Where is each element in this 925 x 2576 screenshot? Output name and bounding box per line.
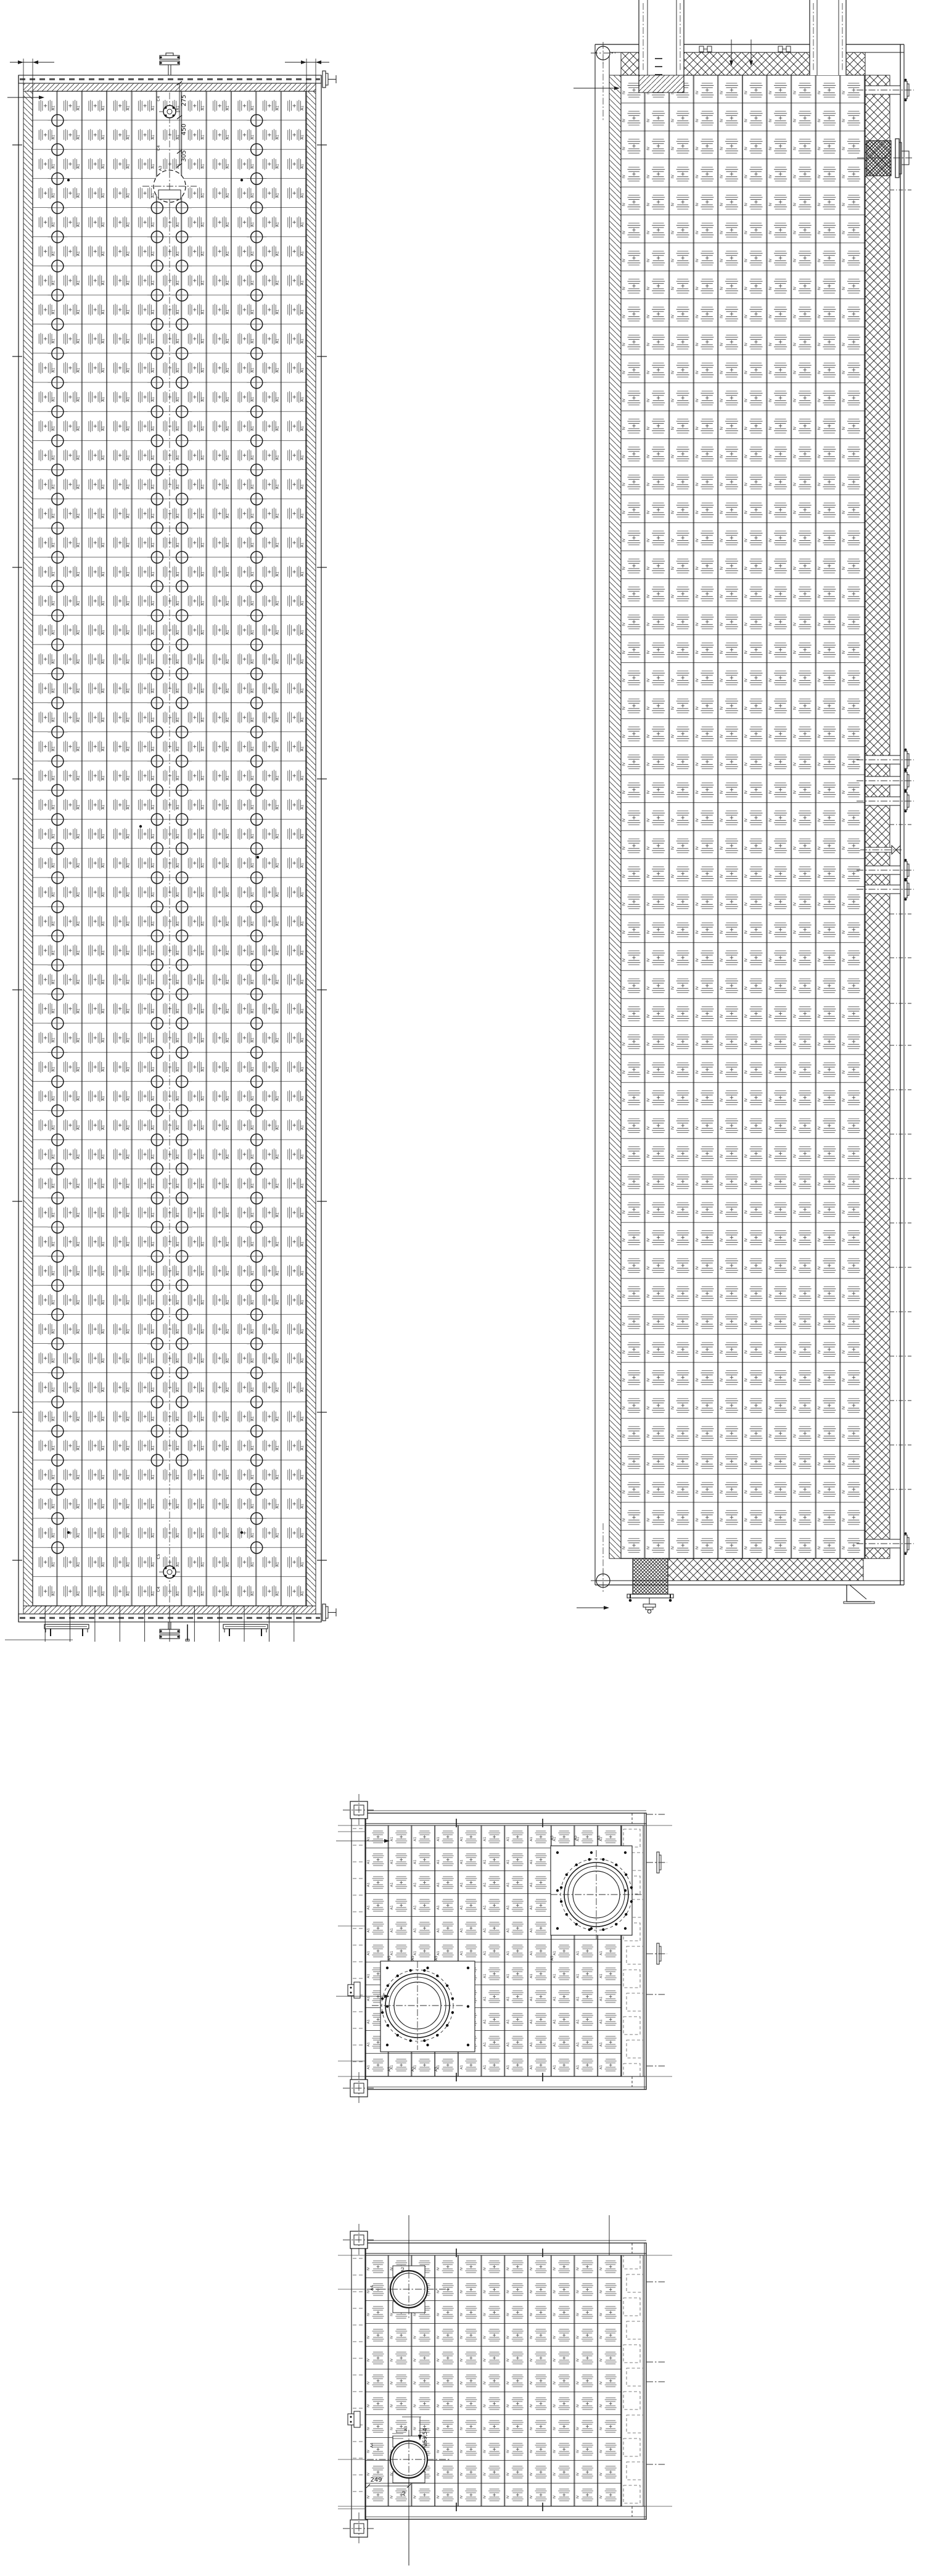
dimension-text: 450 — [181, 123, 187, 135]
rail-clip — [699, 46, 712, 52]
type-tag: A4 — [369, 2286, 374, 2291]
plan-view-bottom: 249253,54A2A3A4A4A2 — [338, 2215, 672, 2566]
side-connector — [348, 1982, 360, 1998]
type-tag: A5 — [434, 1956, 438, 1961]
edge-flange — [646, 1852, 667, 1873]
type-tag: A3 — [158, 166, 163, 171]
type-tag: A5 — [411, 1956, 415, 1961]
type-tag: A5 — [411, 2067, 415, 2072]
nozzle-opening — [372, 1961, 475, 2052]
bottom-insulation — [668, 1558, 863, 1581]
type-tag: A5 — [434, 2067, 438, 2072]
left-lining-band — [609, 75, 621, 1558]
dimension-text: 305 — [181, 150, 187, 162]
side-pipe-flange — [323, 1604, 336, 1621]
type-tag: C4 — [156, 96, 161, 102]
insulation-band — [865, 75, 890, 1558]
top-nozzle-fitting — [160, 53, 179, 75]
dimension-text: 253,54 — [422, 2428, 429, 2446]
type-tag: A4 — [369, 2443, 374, 2448]
corner-pipe-section — [591, 42, 615, 64]
top-lining-band — [23, 83, 316, 91]
duct-pipe — [810, 0, 846, 75]
type-tag: A5 — [573, 1835, 578, 1840]
side-pipe-flange — [323, 71, 336, 88]
left-lining-band — [23, 91, 33, 1606]
right-lining-band — [306, 91, 316, 1606]
type-tag: A2 — [401, 2491, 406, 2496]
rail-clip — [778, 46, 791, 52]
anchor-brick-grid — [621, 75, 865, 1558]
corner-flange — [343, 2224, 375, 2256]
cad-drawing: A1 IV A1 — [0, 0, 925, 2576]
type-tag: A5 — [597, 1835, 601, 1840]
side-connector — [348, 2411, 360, 2427]
duct-pipe — [639, 0, 684, 93]
corner-flange — [343, 2072, 375, 2104]
type-tag: A5 — [550, 1956, 554, 1961]
bottom-nozzle-fitting — [160, 1622, 189, 1641]
brick-course-column — [622, 2255, 643, 2506]
corner-flange — [343, 2512, 375, 2545]
nozzle-opening — [551, 1846, 642, 1939]
corner-flange — [343, 1794, 375, 1826]
insulated-bottom-nozzle — [633, 1558, 668, 1594]
dimension-text: 249 — [370, 2477, 382, 2483]
support-bracket — [44, 1624, 89, 1636]
front-elevation-view: 275450305C4C4A3C5C4 — [5, 53, 336, 1642]
type-tag: A2 — [400, 2267, 405, 2273]
type-tag: A5 — [387, 1956, 392, 1961]
bottom-zone — [595, 1558, 904, 1613]
type-tag: C4 — [156, 146, 161, 151]
type-tag: C5 — [156, 1554, 161, 1560]
support-bracket — [223, 1624, 268, 1636]
type-tag: A3 — [403, 2426, 408, 2432]
plan-view-top: A5A5A5A5A5A5A5A5A5A5 — [336, 1794, 672, 2104]
type-tag: C4 — [156, 1587, 161, 1592]
drawing-sheet: A1 IV A1 — [0, 0, 925, 2576]
corner-bracket — [844, 1585, 874, 1603]
edge-flange — [646, 1943, 667, 1964]
side-section-view — [573, 0, 914, 1613]
type-tag: A5 — [550, 1835, 554, 1840]
type-tag: A5 — [387, 2067, 392, 2072]
dimension-text: 275 — [181, 94, 187, 106]
